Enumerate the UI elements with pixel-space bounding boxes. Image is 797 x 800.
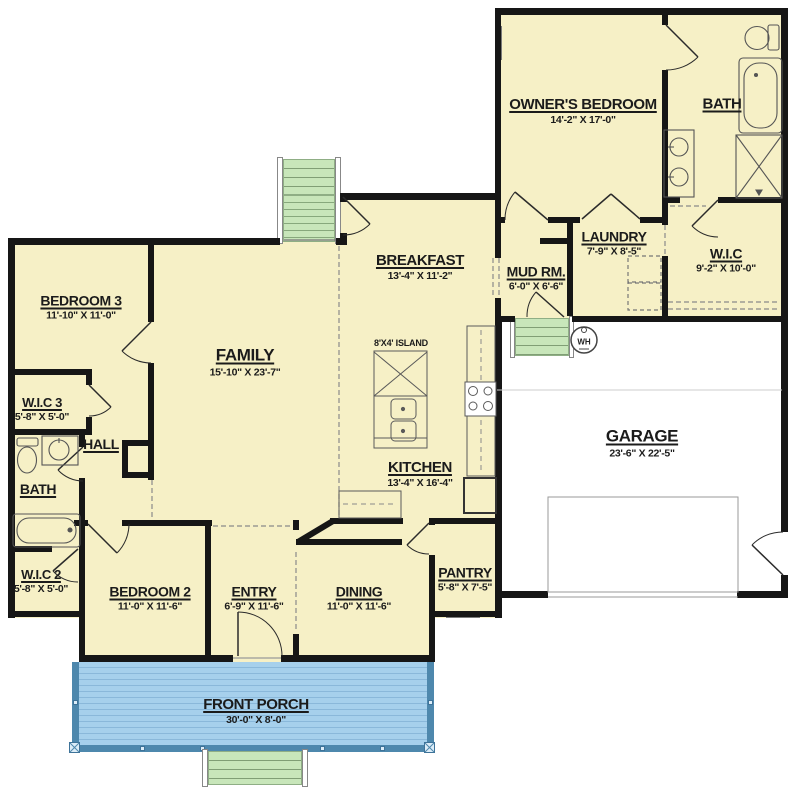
plan-linework — [0, 0, 797, 800]
toilet-tank — [768, 25, 779, 50]
floor-plan: OWNER'S BEDROOM 14'-2" X 17'-0" BATH LAU… — [0, 0, 797, 800]
room-label-wic3: W.I.C 3 5'-8" X 5'-0" — [15, 395, 69, 423]
room-label-owners-bedroom: OWNER'S BEDROOM 14'-2" X 17'-0" — [509, 96, 657, 126]
room-label-wic2: W.I.C 2 5'-8" X 5'-0" — [14, 567, 68, 595]
toilet-bowl — [18, 447, 37, 473]
angled-wall — [298, 521, 333, 542]
garage-door — [497, 390, 782, 597]
room-label-family: FAMILY 15'-10" X 23'-7" — [210, 346, 281, 379]
toilet-tank — [17, 438, 38, 446]
double-vanity — [664, 130, 694, 197]
porch-post-x — [70, 743, 434, 752]
room-label-entry: ENTRY 6'-9" X 11'-6" — [224, 584, 283, 613]
room-label-garage: GARAGE 23'-6" X 22'-5" — [606, 427, 678, 460]
room-label-bedroom2: BEDROOM 2 11'-0" X 11'-6" — [109, 584, 190, 613]
room-label-mud-room: MUD RM. 6'-0" X 6'-6" — [507, 264, 566, 293]
room-label-laundry: LAUNDRY 7'-9" X 8'-5" — [581, 229, 646, 258]
room-label-pantry: PANTRY 5'-8" X 7'-5" — [438, 565, 492, 594]
water-heater-label: WH — [577, 338, 590, 347]
room-label-dining: DINING 11'-0" X 11'-6" — [327, 584, 391, 613]
kitchen-fixtures — [339, 326, 496, 518]
room-label-hall: HALL — [83, 436, 119, 452]
washer-dryer — [628, 256, 661, 310]
room-label-owner-wic: W.I.C 9'-2" X 10'-0" — [696, 246, 756, 275]
stove — [465, 382, 496, 416]
room-label-bath2: BATH — [20, 481, 56, 497]
room-label-front-porch: FRONT PORCH 30'-0" X 8'-0" — [203, 696, 309, 726]
room-label-bedroom3: BEDROOM 3 11'-10" X 11'-0" — [40, 293, 121, 322]
toilet-bowl — [745, 27, 769, 50]
room-label-owner-bath: BATH — [703, 96, 742, 113]
island-label: 8'X4' ISLAND — [374, 338, 428, 348]
room-label-kitchen: KITCHEN 13'-4" X 16'-4" — [387, 459, 452, 489]
room-label-breakfast: BREAKFAST 13'-4" X 11'-2" — [376, 252, 464, 282]
bathtub — [739, 58, 782, 133]
